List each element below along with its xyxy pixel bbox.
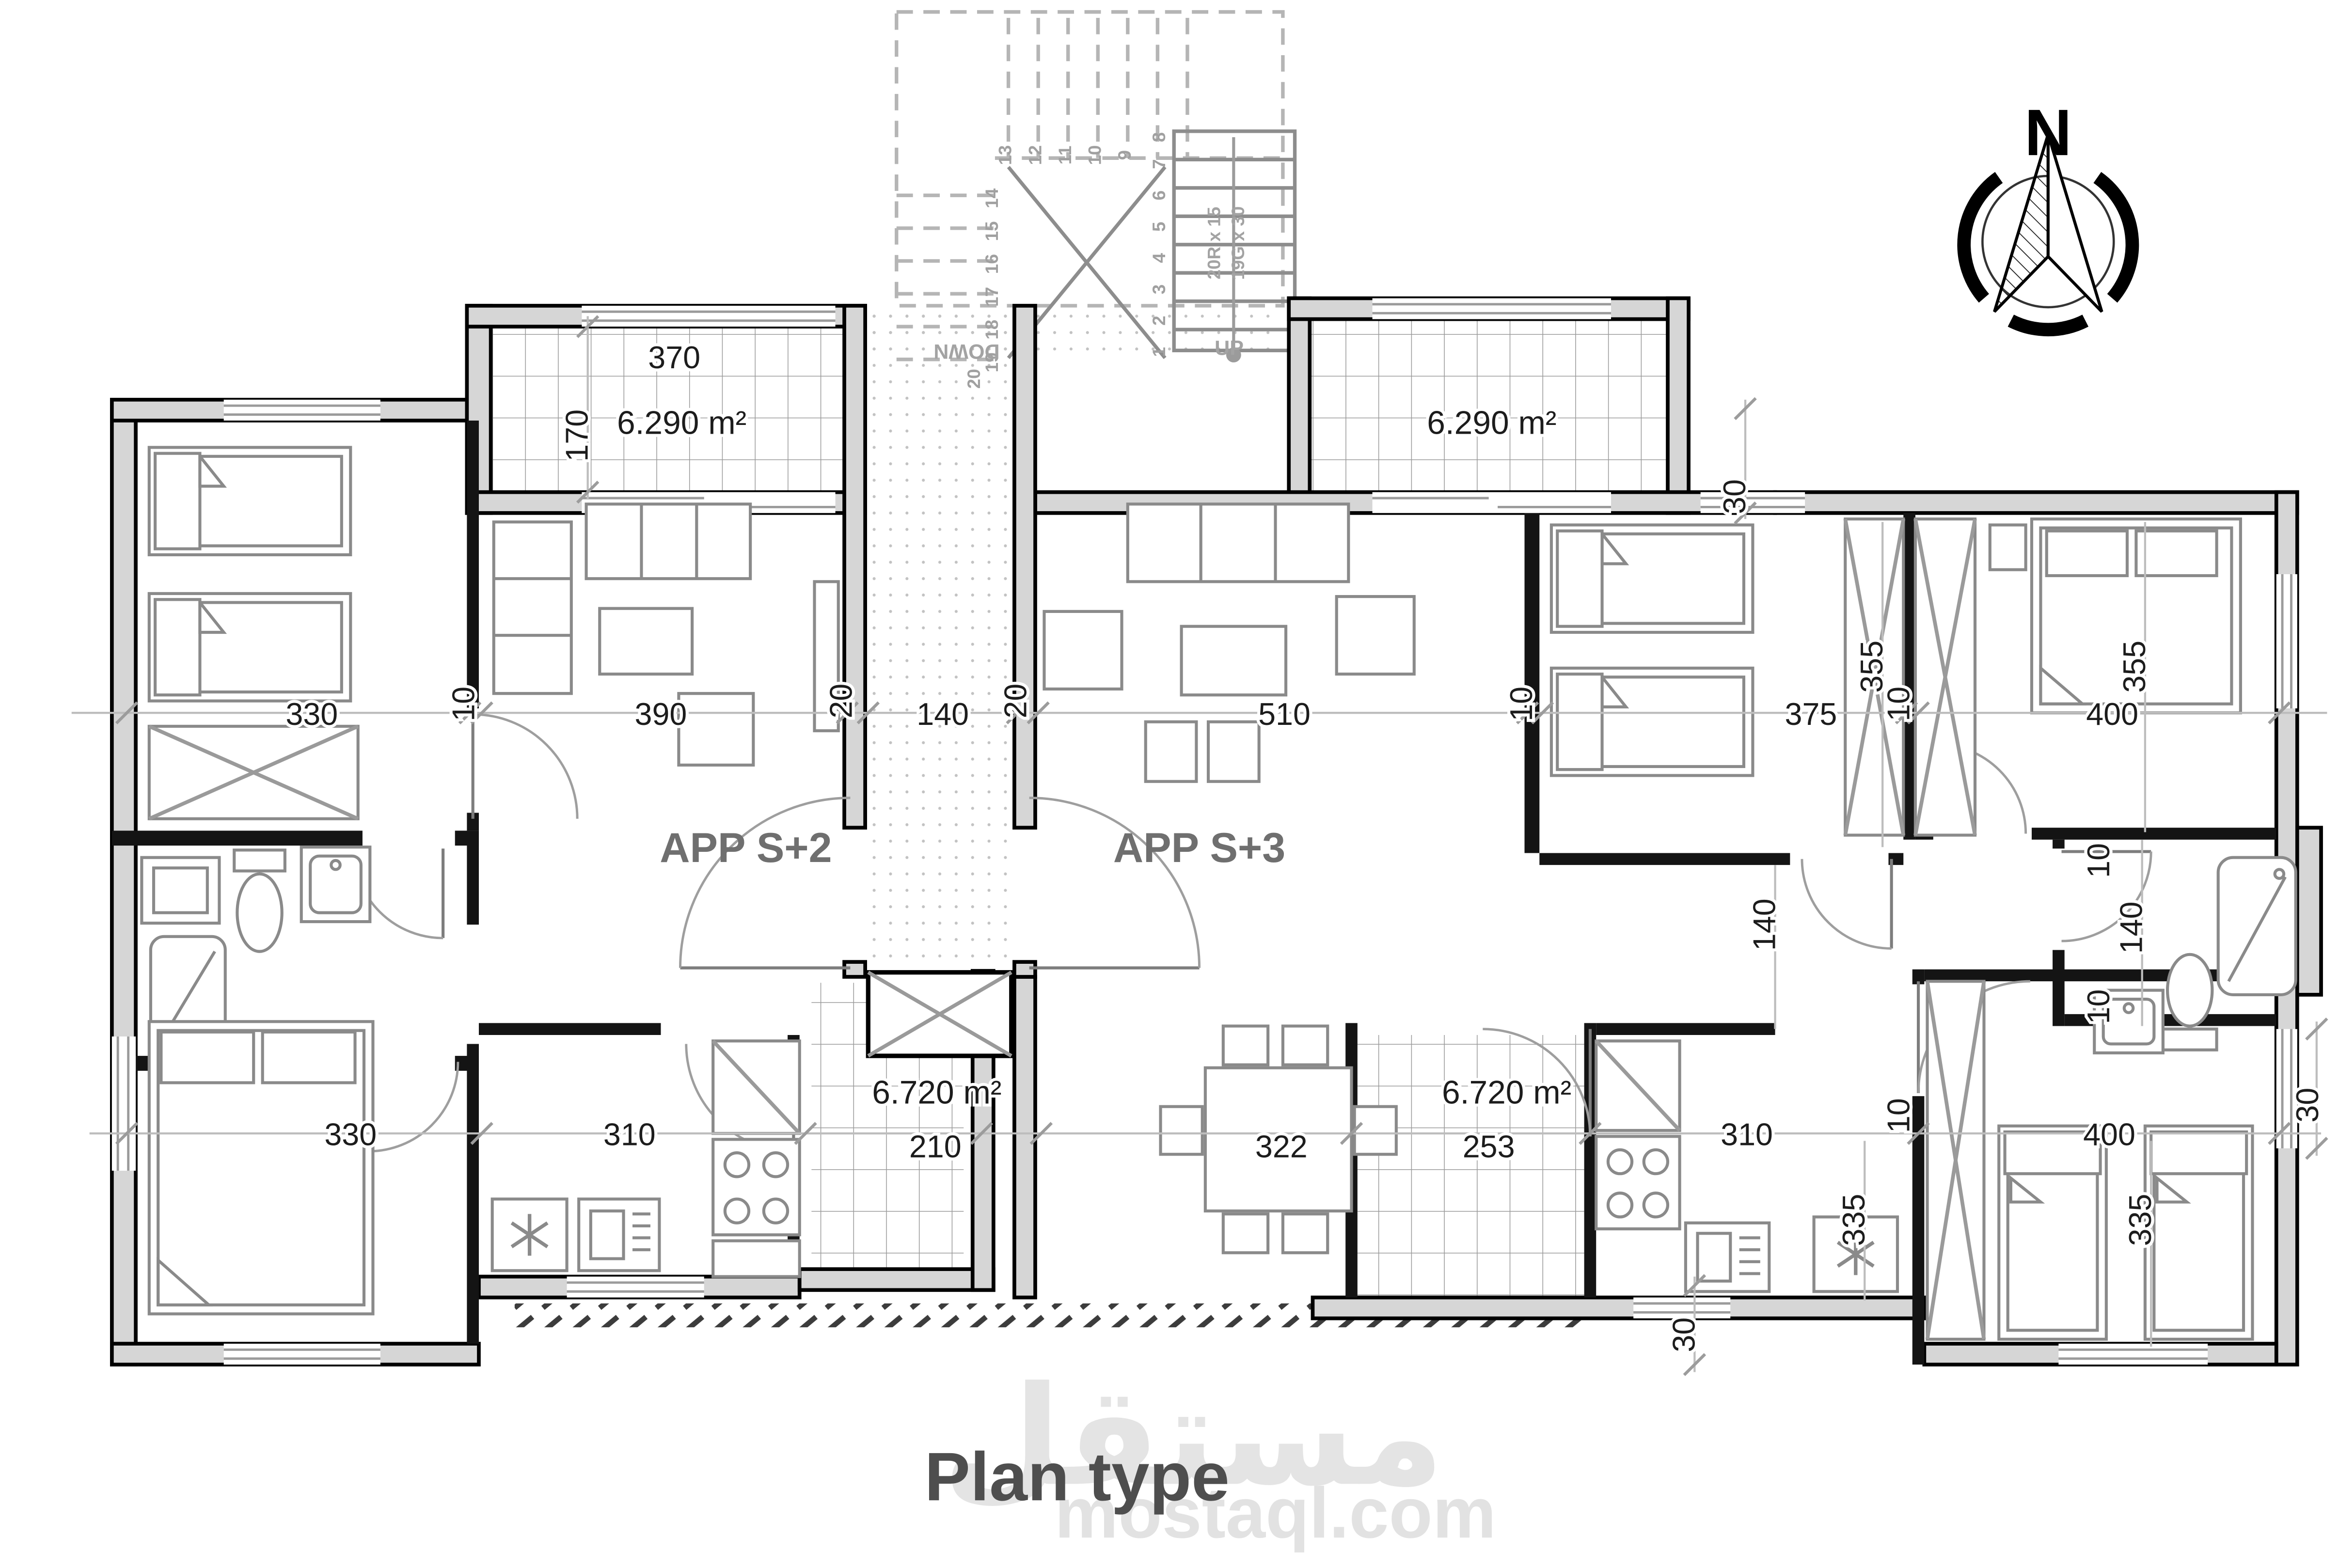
step-number: 17	[982, 287, 1002, 307]
door	[1802, 859, 1892, 949]
dim-label: 375	[1785, 696, 1837, 732]
apartment-left-label: APP S+2	[660, 825, 832, 871]
dim-label: 30	[1717, 479, 1752, 514]
dim-label: 355	[1854, 641, 1889, 693]
dim-label: 10	[1881, 1098, 1916, 1133]
step-number: 1	[1149, 347, 1169, 357]
dim-label: 20	[823, 684, 858, 719]
chair	[1208, 722, 1259, 782]
dim-label: 370	[648, 340, 700, 375]
toilet	[234, 850, 285, 951]
entry-door-right	[1029, 798, 1200, 968]
step-number: 3	[1149, 284, 1169, 295]
apartment-right-label: APP S+3	[1113, 825, 1285, 871]
chair	[1283, 1026, 1328, 1065]
dim-label: 253	[1463, 1129, 1515, 1164]
step-number: 18	[982, 320, 1002, 340]
window	[2276, 574, 2297, 708]
sofa	[586, 504, 751, 579]
plan-title: Plan type	[924, 1439, 1229, 1515]
stair-riser-note: 20R x 15	[1204, 207, 1224, 280]
counter	[713, 1241, 800, 1277]
dim-label: 330	[285, 696, 338, 732]
furniture	[142, 447, 2295, 1339]
step-number: 5	[1149, 222, 1169, 232]
terrace-right-area-label: 6.720 m²	[1442, 1075, 1571, 1111]
window	[224, 400, 380, 421]
window	[1633, 1298, 1730, 1318]
nightstand	[1990, 525, 2026, 569]
dim-label: 30	[2290, 1088, 2325, 1123]
cabinet	[713, 1041, 800, 1133]
stove	[713, 1139, 800, 1235]
vanity-sink	[142, 858, 219, 923]
entry-door-left	[680, 798, 850, 968]
dim-label: 10	[1503, 687, 1539, 721]
door	[473, 714, 577, 818]
kitchen-right	[1596, 1041, 1897, 1291]
step-number: 16	[982, 254, 1002, 274]
dim-label: 10	[1881, 687, 1916, 721]
dim-label: 400	[2086, 696, 2138, 732]
single-bed	[1551, 525, 1753, 632]
dim-label: 10	[2081, 989, 2116, 1024]
washing-machine	[579, 1199, 659, 1271]
floor-finishes	[491, 319, 1668, 1328]
single-bed	[149, 594, 351, 701]
dim-label: 210	[909, 1129, 962, 1164]
single-bed	[1999, 1126, 2106, 1339]
step-number: 12	[1025, 145, 1045, 165]
window	[2058, 1344, 2208, 1364]
armchair	[679, 693, 753, 765]
wardrobe	[149, 726, 358, 819]
stair-going-note: 19G x 30	[1228, 206, 1248, 280]
coffee-table	[1182, 627, 1286, 695]
dim-label: 330	[324, 1117, 377, 1152]
step-number: 9	[1115, 150, 1135, 160]
step-number: 6	[1149, 190, 1169, 201]
stair-down-label: DOWN	[933, 340, 999, 363]
fridge	[492, 1199, 567, 1271]
step-number: 4	[1149, 253, 1169, 263]
dim-label: 10	[446, 687, 481, 721]
sofa	[1128, 504, 1349, 581]
toilet	[2163, 955, 2217, 1050]
dim-label: 322	[1255, 1129, 1308, 1164]
dim-label: 10	[2081, 843, 2116, 878]
step-number: 2	[1149, 315, 1169, 326]
floor-plan-page: مستقل mostaql.com	[0, 0, 2339, 1568]
closet	[1928, 981, 1984, 1339]
chair	[1355, 1107, 1396, 1154]
kitchen-left	[492, 1041, 800, 1276]
step-number: 7	[1149, 159, 1169, 169]
balcony-railing	[1373, 298, 1611, 319]
armchair	[1044, 612, 1122, 689]
floor-plan-canvas: مستقل mostaql.com	[0, 0, 2339, 1568]
dim-label: 335	[1836, 1194, 1871, 1246]
chair	[1161, 1107, 1202, 1154]
dim-label: 140	[917, 696, 969, 732]
step-number: 10	[1085, 145, 1105, 165]
dim-label: 20	[998, 684, 1033, 719]
window	[112, 1036, 136, 1171]
dim-label: 310	[603, 1117, 656, 1152]
double-bed	[149, 1021, 373, 1314]
dim-label: 400	[2083, 1117, 2135, 1152]
dim-label: 170	[559, 409, 595, 462]
window	[567, 1277, 704, 1298]
step-number: 11	[1055, 146, 1075, 165]
chair	[1223, 1214, 1268, 1253]
dim-label: 390	[635, 696, 687, 732]
cabinet	[1596, 1041, 1679, 1130]
stove	[1596, 1136, 1679, 1229]
corridor-floor	[868, 307, 1011, 975]
dim-label: 310	[1721, 1117, 1773, 1152]
sofa	[494, 522, 571, 693]
armchair	[1337, 596, 1414, 674]
shower	[2218, 858, 2296, 995]
door	[368, 1062, 458, 1151]
terrace-left-area-label: 6.720 m²	[872, 1075, 1001, 1111]
step-number: 14	[982, 188, 1002, 208]
single-bed	[1551, 668, 1753, 776]
dim-label: 510	[1258, 696, 1311, 732]
north-compass: N	[1964, 95, 2132, 329]
balcony-left-area-label: 6.290 m²	[617, 405, 746, 441]
balcony-railing	[582, 306, 835, 327]
step-number: 20	[964, 369, 984, 389]
coffee-table	[600, 609, 692, 674]
dim-label: 335	[2122, 1194, 2158, 1246]
washbasin	[301, 847, 370, 922]
sliding-door	[1373, 492, 1611, 513]
north-arrow-icon	[1994, 134, 2102, 312]
step-number: 15	[982, 221, 1002, 241]
dim-label: 355	[2117, 641, 2152, 693]
single-bed	[2145, 1126, 2253, 1339]
stair-up-label: UP	[1215, 337, 1244, 360]
duct-shaft	[868, 972, 1011, 1056]
dim-label: 140	[1747, 898, 1782, 951]
dim-label: 140	[2114, 901, 2149, 954]
window	[224, 1344, 380, 1364]
window	[1701, 492, 1805, 513]
balcony-right-area-label: 6.290 m²	[1427, 405, 1556, 441]
chair	[1146, 722, 1197, 782]
chair	[1223, 1026, 1268, 1065]
closet	[1915, 519, 1975, 835]
step-number: 8	[1149, 132, 1169, 142]
dim-label: 30	[1666, 1317, 1701, 1352]
chair	[1283, 1214, 1328, 1253]
single-bed	[149, 447, 351, 555]
step-number: 13	[996, 145, 1015, 165]
